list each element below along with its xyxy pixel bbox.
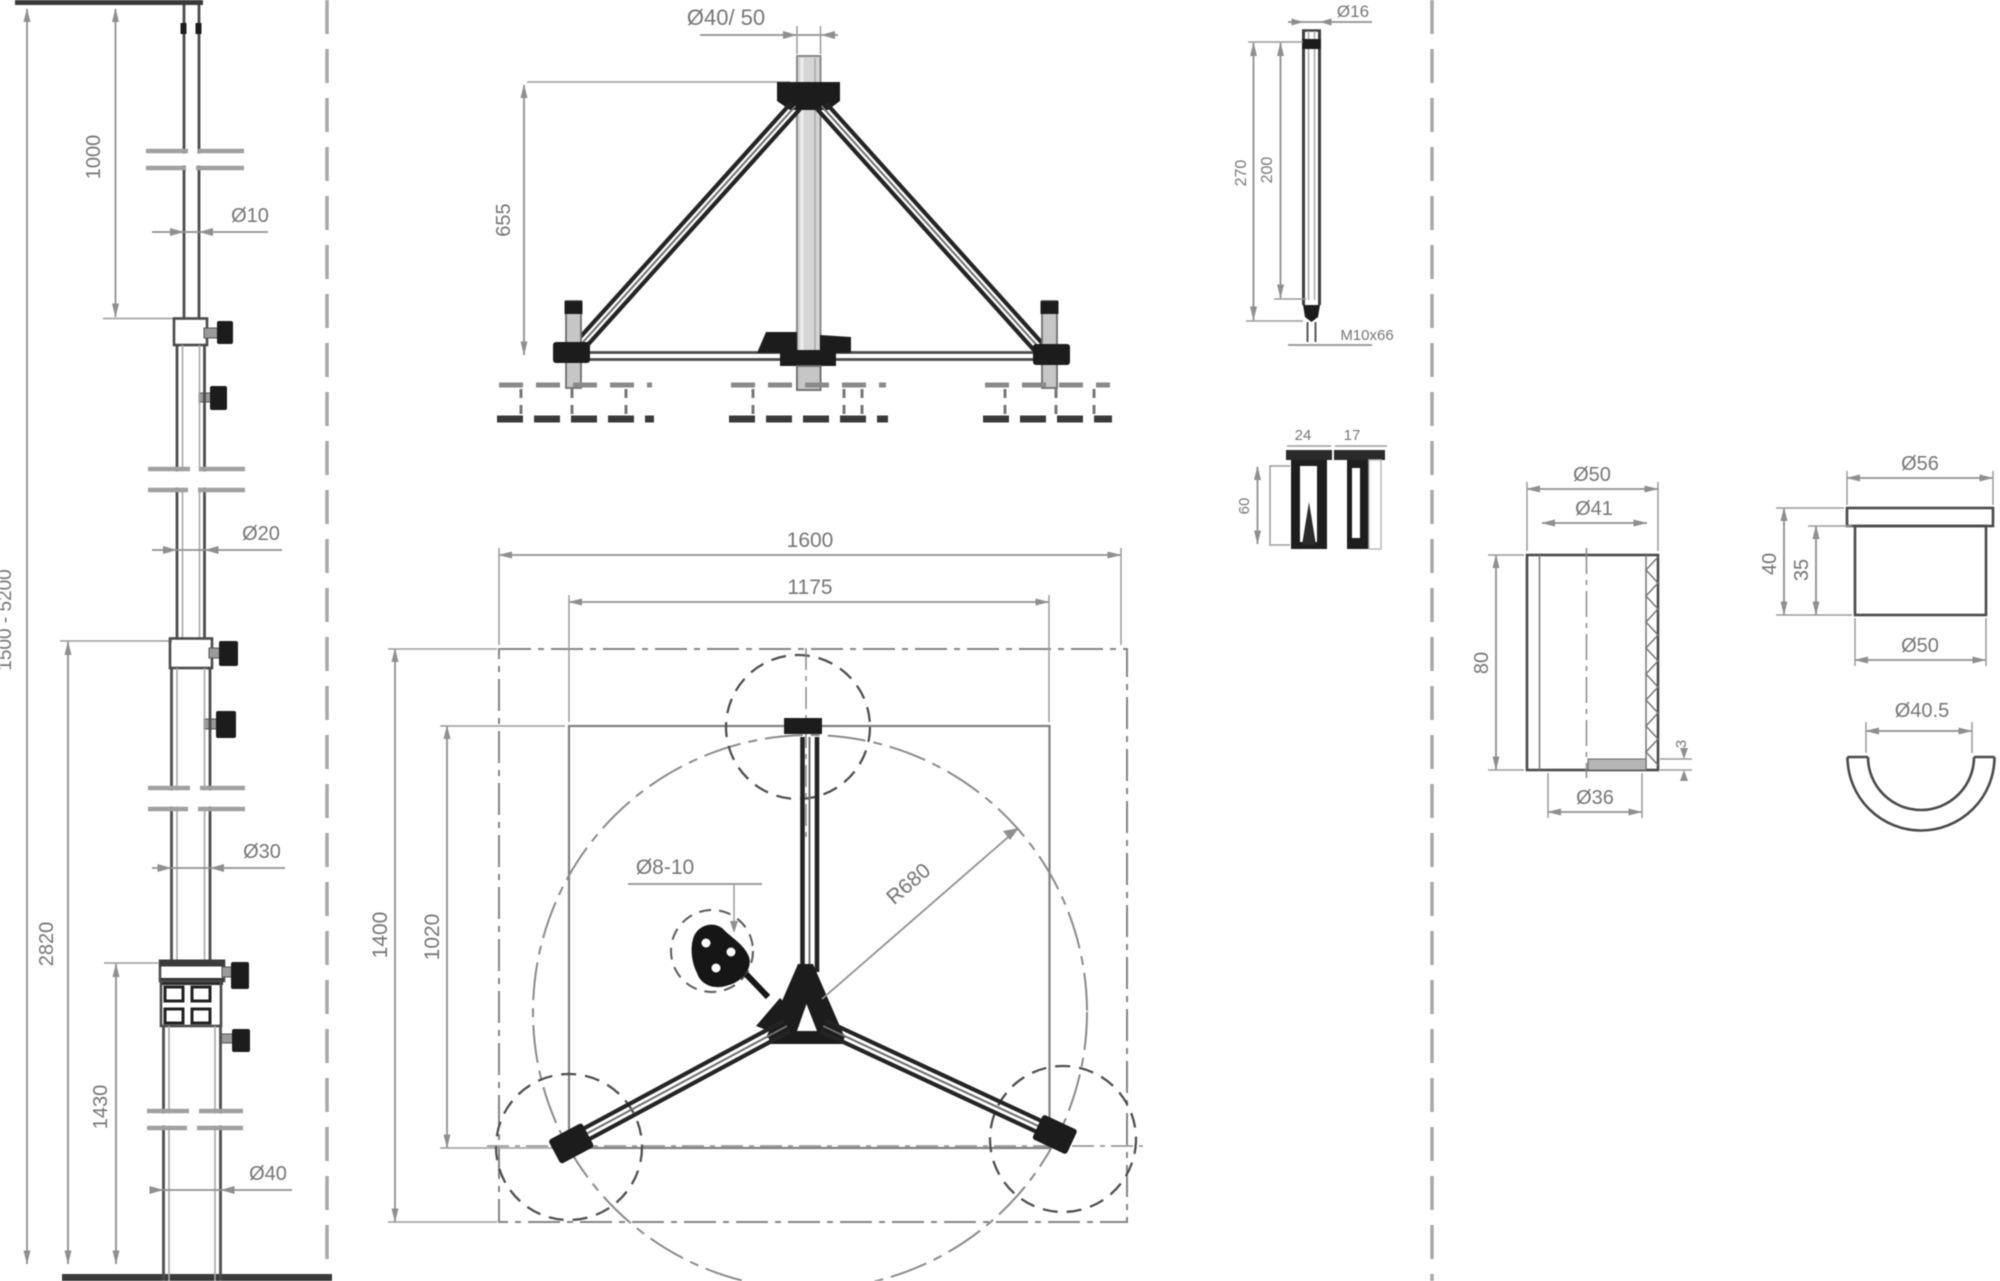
svg-text:1020: 1020 <box>421 914 444 961</box>
svg-text:270: 270 <box>1233 160 1250 187</box>
svg-text:1500 - 5200: 1500 - 5200 <box>0 569 16 670</box>
svg-text:80: 80 <box>1471 652 1493 674</box>
svg-text:Ø41: Ø41 <box>1575 498 1613 520</box>
svg-text:M10x66: M10x66 <box>1340 327 1393 344</box>
svg-text:60: 60 <box>1236 498 1253 515</box>
svg-text:1000: 1000 <box>83 135 105 180</box>
svg-text:40: 40 <box>1759 553 1781 575</box>
svg-text:Ø40: Ø40 <box>249 1163 287 1185</box>
svg-text:Ø16: Ø16 <box>1337 2 1369 21</box>
svg-text:1175: 1175 <box>787 576 832 599</box>
svg-text:Ø36: Ø36 <box>1576 787 1614 809</box>
svg-text:Ø40/ 50: Ø40/ 50 <box>687 5 765 30</box>
svg-text:1600: 1600 <box>787 529 834 552</box>
svg-text:Ø50: Ø50 <box>1573 464 1611 486</box>
svg-text:Ø50: Ø50 <box>1901 635 1939 657</box>
svg-text:2820: 2820 <box>36 922 58 967</box>
svg-text:35: 35 <box>1791 559 1813 581</box>
svg-text:Ø30: Ø30 <box>243 841 281 863</box>
svg-text:1430: 1430 <box>90 1085 112 1130</box>
svg-text:655: 655 <box>493 203 515 236</box>
svg-text:Ø56: Ø56 <box>1901 453 1939 475</box>
svg-text:3: 3 <box>1673 740 1690 748</box>
svg-text:Ø10: Ø10 <box>231 205 269 227</box>
svg-text:Ø40.5: Ø40.5 <box>1895 700 1949 722</box>
svg-text:24: 24 <box>1295 427 1312 444</box>
svg-text:Ø8-10: Ø8-10 <box>636 856 694 879</box>
svg-text:1400: 1400 <box>369 912 392 959</box>
svg-text:200: 200 <box>1259 157 1276 184</box>
svg-text:17: 17 <box>1344 427 1361 444</box>
svg-text:Ø20: Ø20 <box>242 523 280 545</box>
